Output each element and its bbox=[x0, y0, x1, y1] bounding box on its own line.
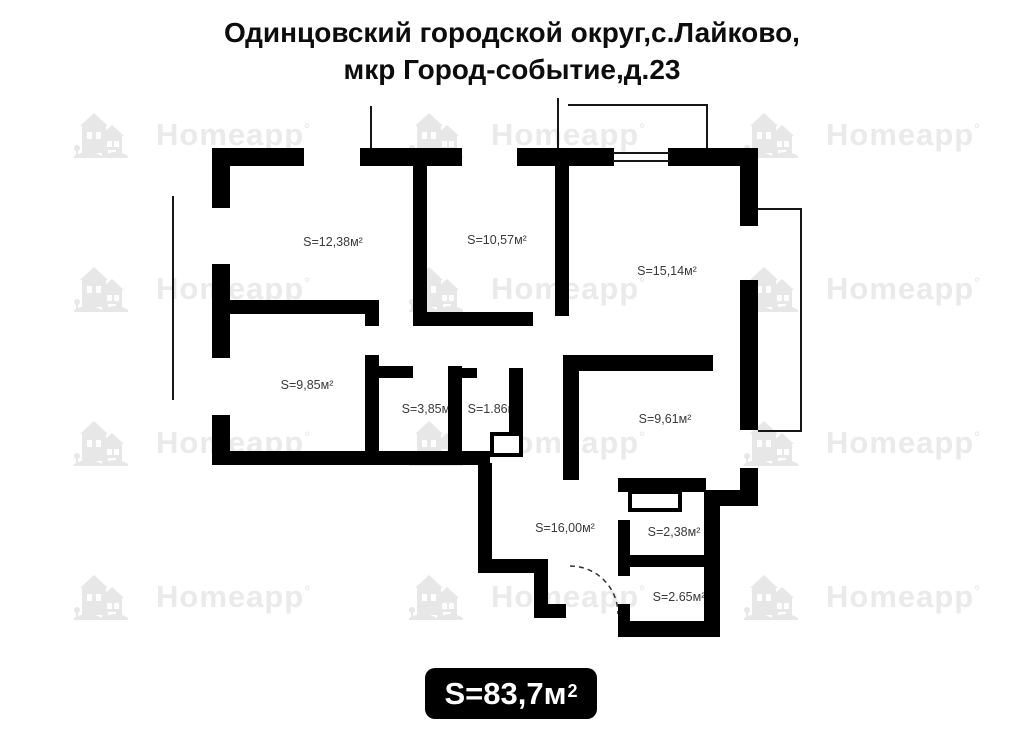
room-area-label: S=12,38м² bbox=[303, 235, 363, 249]
balcony-outline-line bbox=[370, 106, 372, 148]
homeapp-watermark-text: Homeapp° bbox=[826, 117, 981, 153]
wall-segment bbox=[517, 148, 614, 166]
wall-segment bbox=[618, 621, 720, 637]
homeapp-house-icon bbox=[742, 572, 800, 622]
wall-segment bbox=[563, 357, 579, 480]
wall-segment bbox=[618, 520, 630, 576]
wall-segment bbox=[365, 355, 379, 453]
balcony-outline-line bbox=[557, 98, 559, 148]
room-area-label: S=2,38м² bbox=[648, 525, 701, 539]
balcony-outline-line bbox=[758, 208, 802, 210]
room-area-label: S=15,14м² bbox=[637, 264, 697, 278]
homeapp-house-icon bbox=[72, 572, 130, 622]
wall-segment bbox=[618, 604, 630, 637]
wall-segment bbox=[478, 559, 548, 573]
homeapp-house-icon bbox=[72, 418, 130, 468]
wall-segment bbox=[534, 573, 548, 618]
homeapp-watermark: Homeapp° bbox=[742, 418, 981, 468]
wall-segment bbox=[630, 555, 706, 567]
homeapp-watermark: Homeapp° bbox=[742, 572, 981, 622]
wall-segment bbox=[740, 148, 758, 226]
duct-box bbox=[490, 432, 523, 457]
wall-segment bbox=[704, 490, 720, 637]
wall-segment bbox=[360, 148, 462, 166]
wall-segment bbox=[365, 300, 379, 326]
homeapp-watermark: Homeapp° bbox=[407, 572, 646, 622]
floor-plan-page: Одинцовский городской округ,с.Лайково, м… bbox=[0, 0, 1024, 731]
wall-segment bbox=[509, 368, 523, 432]
duct-box bbox=[628, 490, 682, 512]
entrance-door-arc bbox=[0, 0, 1024, 731]
wall-segment bbox=[740, 280, 758, 430]
balcony-outline-line bbox=[613, 160, 670, 162]
wall-segment bbox=[555, 166, 569, 316]
wall-segment bbox=[230, 300, 368, 314]
wall-segment bbox=[448, 368, 477, 378]
wall-segment bbox=[448, 366, 462, 457]
page-title: Одинцовский городской округ,с.Лайково, м… bbox=[0, 14, 1024, 88]
homeapp-watermark: Homeapp° bbox=[72, 572, 311, 622]
homeapp-watermark-text: Homeapp° bbox=[826, 271, 981, 307]
title-line-1: Одинцовский городской округ,с.Лайково, bbox=[0, 14, 1024, 51]
room-area-label: S=16,00м² bbox=[535, 521, 595, 535]
room-area-label: S=10,57м² bbox=[467, 233, 527, 247]
wall-segment bbox=[379, 366, 413, 378]
wall-segment bbox=[413, 166, 427, 312]
title-line-2: мкр Город-событие,д.23 bbox=[0, 51, 1024, 88]
total-area-text: S=83,7м bbox=[444, 676, 566, 712]
room-area-label: S=3,85м² bbox=[402, 402, 455, 416]
homeapp-watermark: Homeapp° bbox=[742, 110, 981, 160]
wall-segment bbox=[413, 312, 533, 326]
room-area-label: S=9,61м² bbox=[639, 412, 692, 426]
homeapp-house-icon bbox=[72, 110, 130, 160]
total-area-sup: 2 bbox=[568, 681, 578, 702]
wall-segment bbox=[212, 264, 230, 358]
room-area-label: S=9,85м² bbox=[281, 378, 334, 392]
balcony-outline-line bbox=[758, 430, 802, 432]
balcony-outline-line bbox=[800, 208, 802, 432]
total-area-badge: S=83,7м2 bbox=[425, 668, 597, 719]
homeapp-watermark-text: Homeapp° bbox=[156, 579, 311, 615]
balcony-outline-line bbox=[613, 152, 670, 154]
homeapp-house-icon bbox=[72, 264, 130, 314]
wall-segment bbox=[548, 604, 566, 618]
balcony-outline-line bbox=[172, 196, 174, 400]
homeapp-watermark-text: Homeapp° bbox=[826, 425, 981, 461]
homeapp-house-icon bbox=[407, 572, 465, 622]
wall-segment bbox=[563, 355, 713, 371]
homeapp-watermark: Homeapp° bbox=[407, 264, 646, 314]
homeapp-watermark: Homeapp° bbox=[742, 264, 981, 314]
wall-segment bbox=[478, 463, 492, 573]
homeapp-watermark-text: Homeapp° bbox=[826, 579, 981, 615]
room-area-label: S=2.65м² bbox=[653, 590, 706, 604]
wall-segment bbox=[212, 148, 230, 208]
balcony-outline-line bbox=[706, 104, 708, 148]
balcony-outline-line bbox=[568, 104, 708, 106]
